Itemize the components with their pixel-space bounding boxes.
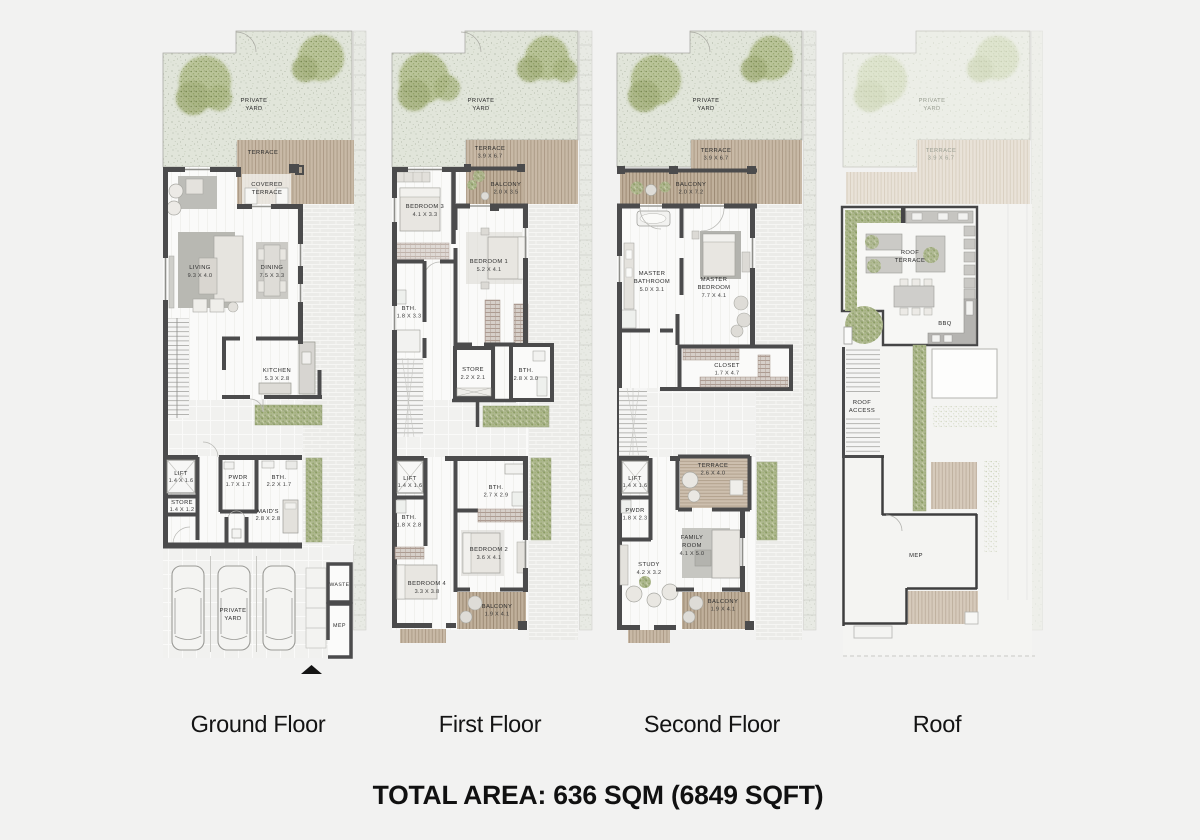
svg-text:MEP: MEP xyxy=(909,553,923,559)
svg-text:YARD: YARD xyxy=(472,106,489,112)
svg-text:1.4 X 1.6: 1.4 X 1.6 xyxy=(169,478,194,484)
svg-text:KITCHEN: KITCHEN xyxy=(263,367,291,374)
svg-text:STORE: STORE xyxy=(462,366,484,373)
svg-text:ACCESS: ACCESS xyxy=(849,407,875,414)
svg-text:TERRACE: TERRACE xyxy=(248,149,279,156)
svg-text:TERRACE: TERRACE xyxy=(252,189,283,196)
svg-text:TERRACE: TERRACE xyxy=(698,462,729,469)
svg-text:BALCONY: BALCONY xyxy=(676,181,707,188)
svg-text:LIFT: LIFT xyxy=(174,471,188,477)
svg-text:FAMILY: FAMILY xyxy=(681,535,704,541)
svg-text:TOTAL AREA: 636 SQM (6849 SQFT: TOTAL AREA: 636 SQM (6849 SQFT) xyxy=(373,780,824,810)
svg-text:MASTER: MASTER xyxy=(701,276,728,283)
svg-text:BTH.: BTH. xyxy=(519,368,534,374)
svg-text:TERRACE: TERRACE xyxy=(701,147,732,154)
svg-text:1.9 X 4.1: 1.9 X 4.1 xyxy=(485,612,510,618)
svg-text:BALCONY: BALCONY xyxy=(482,603,513,610)
svg-text:1.4 X 1.6: 1.4 X 1.6 xyxy=(623,483,648,489)
svg-text:3.9 X 6.7: 3.9 X 6.7 xyxy=(928,155,955,162)
svg-text:2.6 X 4.0: 2.6 X 4.0 xyxy=(701,471,726,477)
svg-text:PWDR: PWDR xyxy=(625,508,644,514)
svg-text:STUDY: STUDY xyxy=(638,561,660,568)
svg-text:1.4 X 1.2: 1.4 X 1.2 xyxy=(170,507,195,513)
svg-text:Ground Floor: Ground Floor xyxy=(191,711,326,737)
svg-text:COVERED: COVERED xyxy=(251,181,282,188)
svg-text:3.9 X 6.7: 3.9 X 6.7 xyxy=(478,154,503,160)
svg-text:3.9 X 6.7: 3.9 X 6.7 xyxy=(704,156,729,162)
svg-text:4.2 X 3.2: 4.2 X 3.2 xyxy=(637,570,662,576)
svg-text:4.1 X 5.0: 4.1 X 5.0 xyxy=(680,551,705,557)
svg-text:BEDROOM 4: BEDROOM 4 xyxy=(408,580,447,587)
svg-text:WASTE: WASTE xyxy=(330,582,350,588)
svg-text:4.1 X 3.3: 4.1 X 3.3 xyxy=(413,212,438,218)
svg-text:PRIVATE: PRIVATE xyxy=(468,98,495,104)
svg-text:BEDROOM 3: BEDROOM 3 xyxy=(406,203,444,210)
svg-text:2.7 X 2.9: 2.7 X 2.9 xyxy=(484,493,509,499)
svg-text:2.2 X 2.1: 2.2 X 2.1 xyxy=(461,375,486,381)
svg-text:PRIVATE: PRIVATE xyxy=(919,98,946,104)
svg-text:TERRACE: TERRACE xyxy=(926,147,957,154)
svg-text:BBQ: BBQ xyxy=(938,320,952,327)
svg-text:2.8 X 2.8: 2.8 X 2.8 xyxy=(256,516,281,522)
svg-text:Roof: Roof xyxy=(913,711,962,737)
svg-text:TERRACE: TERRACE xyxy=(895,257,926,264)
svg-text:2.8 X 3.0: 2.8 X 3.0 xyxy=(514,376,539,382)
svg-text:5.2 X 4.1: 5.2 X 4.1 xyxy=(477,267,502,273)
svg-text:1.9 X 4.1: 1.9 X 4.1 xyxy=(711,607,736,613)
svg-text:PRIVATE: PRIVATE xyxy=(241,98,268,104)
svg-text:YARD: YARD xyxy=(245,106,262,112)
svg-text:BEDROOM: BEDROOM xyxy=(698,284,731,291)
svg-text:First Floor: First Floor xyxy=(439,711,542,737)
svg-text:BTH.: BTH. xyxy=(489,485,504,491)
svg-text:9.3 X 4.0: 9.3 X 4.0 xyxy=(188,273,213,279)
svg-text:CLOSET: CLOSET xyxy=(714,362,740,369)
svg-text:BEDROOM 1: BEDROOM 1 xyxy=(470,258,508,265)
svg-text:MAID'S: MAID'S xyxy=(257,508,279,515)
svg-text:1.7 X 1.7: 1.7 X 1.7 xyxy=(226,482,251,488)
svg-text:ROOM: ROOM xyxy=(682,542,702,549)
svg-text:3.3 X 3.8: 3.3 X 3.8 xyxy=(415,589,440,595)
svg-text:MEP: MEP xyxy=(333,623,346,629)
svg-text:2.0 X 7.2: 2.0 X 7.2 xyxy=(679,190,704,196)
svg-text:BTH.: BTH. xyxy=(272,475,287,481)
svg-text:PWDR: PWDR xyxy=(228,475,247,481)
svg-text:3.6 X 4.1: 3.6 X 4.1 xyxy=(477,555,502,561)
svg-text:YARD: YARD xyxy=(923,106,940,112)
svg-text:5.0 X 3.1: 5.0 X 3.1 xyxy=(640,287,665,293)
svg-text:BEDROOM 2: BEDROOM 2 xyxy=(470,546,508,553)
svg-text:ROOF: ROOF xyxy=(853,399,871,406)
svg-text:PRIVATE: PRIVATE xyxy=(693,98,720,104)
svg-text:BALCONY: BALCONY xyxy=(491,181,522,188)
svg-text:1.8 X 2.3: 1.8 X 2.3 xyxy=(623,516,648,522)
svg-text:BTH.: BTH. xyxy=(402,306,417,312)
svg-text:BATHROOM: BATHROOM xyxy=(634,278,670,285)
svg-text:STORE: STORE xyxy=(171,499,193,506)
svg-text:1.8 X 3.3: 1.8 X 3.3 xyxy=(397,314,422,320)
svg-text:MASTER: MASTER xyxy=(639,270,666,277)
svg-text:Second Floor: Second Floor xyxy=(644,711,781,737)
svg-text:LIVING: LIVING xyxy=(189,264,210,271)
svg-text:2.0 X 3.5: 2.0 X 3.5 xyxy=(494,190,519,196)
svg-text:1.8 X 2.8: 1.8 X 2.8 xyxy=(397,523,422,529)
svg-text:YARD: YARD xyxy=(697,106,714,112)
svg-text:BALCONY: BALCONY xyxy=(708,598,739,605)
svg-text:7.7 X 4.1: 7.7 X 4.1 xyxy=(702,293,727,299)
svg-text:5.3 X 2.8: 5.3 X 2.8 xyxy=(265,376,290,382)
svg-text:2.2 X 1.7: 2.2 X 1.7 xyxy=(267,482,292,488)
svg-text:1.4 X 1.6: 1.4 X 1.6 xyxy=(398,483,423,489)
svg-text:LIFT: LIFT xyxy=(628,476,642,482)
svg-text:1.7 X 4.7: 1.7 X 4.7 xyxy=(715,371,740,377)
svg-text:LIFT: LIFT xyxy=(403,476,417,482)
svg-text:7.5 X 3.3: 7.5 X 3.3 xyxy=(260,273,285,279)
svg-text:YARD: YARD xyxy=(224,616,241,622)
svg-text:DINING: DINING xyxy=(261,264,284,271)
svg-text:PRIVATE: PRIVATE xyxy=(220,608,247,614)
svg-text:BTH.: BTH. xyxy=(402,515,417,521)
svg-text:TERRACE: TERRACE xyxy=(475,145,506,152)
svg-text:ROOF: ROOF xyxy=(901,249,919,256)
